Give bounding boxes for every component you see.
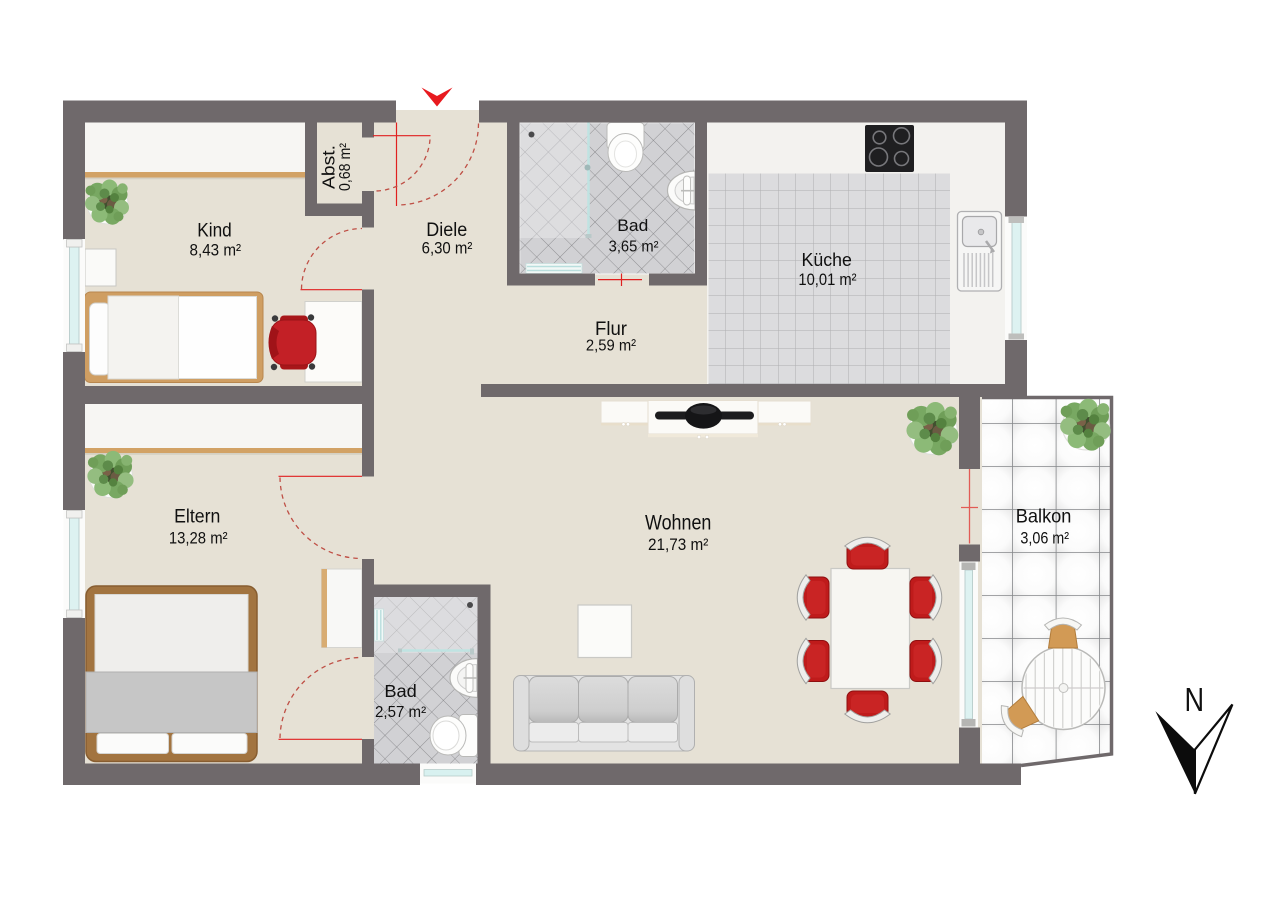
svg-text:2,59 m²: 2,59 m² xyxy=(586,338,637,355)
svg-text:Küche: Küche xyxy=(802,249,852,270)
svg-text:3,65 m²: 3,65 m² xyxy=(609,238,659,255)
svg-text:Wohnen: Wohnen xyxy=(645,512,711,535)
svg-text:Abst.: Abst. xyxy=(319,145,339,189)
svg-text:10,01 m²: 10,01 m² xyxy=(798,271,857,289)
svg-text:Diele: Diele xyxy=(426,220,467,241)
svg-text:0,68 m²: 0,68 m² xyxy=(337,143,354,191)
svg-text:Eltern: Eltern xyxy=(174,507,220,528)
svg-text:N: N xyxy=(1185,682,1205,719)
svg-text:3,06 m²: 3,06 m² xyxy=(1020,530,1069,548)
svg-text:Bad: Bad xyxy=(384,681,417,701)
svg-text:13,28 m²: 13,28 m² xyxy=(169,529,228,547)
svg-text:6,30 m²: 6,30 m² xyxy=(422,239,473,257)
svg-text:Bad: Bad xyxy=(617,216,648,235)
svg-text:Kind: Kind xyxy=(197,220,232,241)
svg-text:Balkon: Balkon xyxy=(1016,506,1072,528)
svg-text:21,73 m²: 21,73 m² xyxy=(648,535,709,554)
svg-text:8,43 m²: 8,43 m² xyxy=(190,241,242,259)
svg-text:2,57 m²: 2,57 m² xyxy=(375,704,426,721)
